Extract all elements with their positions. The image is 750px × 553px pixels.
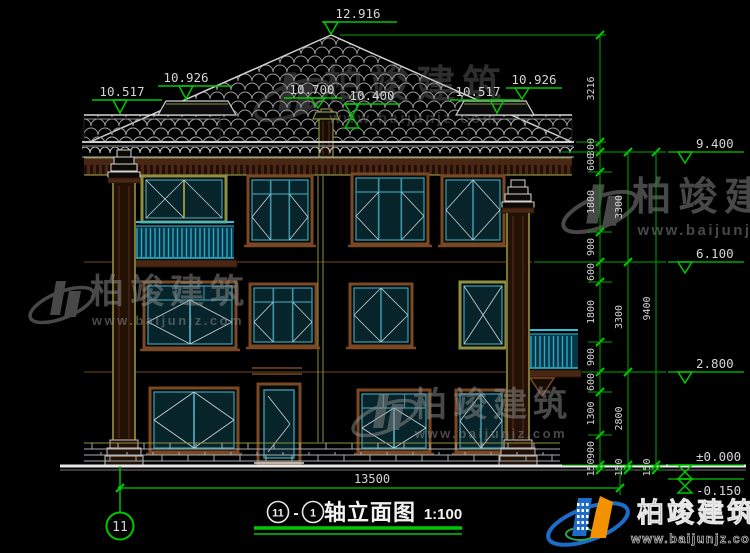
cad-viewport: 柏竣建筑www.baijunjz.com柏竣建筑www.baijunjz.com… [0, 0, 750, 553]
elevation-label: 10.517 [455, 84, 500, 99]
drawing-title: 轴立面图 [324, 500, 416, 525]
axis-bubble-label: 11 [112, 520, 128, 535]
elevation-label: 2.800 [696, 356, 734, 371]
elevation-marker: 9.400 [668, 136, 744, 163]
overall-dim-label: 13500 [354, 472, 390, 486]
elevation-label: ±0.000 [696, 449, 741, 464]
watermark-url: www.baijunjz.com [91, 313, 244, 328]
dim-label: 1800 [586, 300, 597, 324]
balcony-railing [525, 330, 581, 377]
elevation-drawing-svg: 柏竣建筑www.baijunjz.com柏竣建筑www.baijunjz.com… [0, 0, 750, 553]
elevation-marker: 2.800 [668, 356, 744, 383]
window [348, 174, 432, 246]
dim-label: 150 [586, 458, 597, 476]
brand-logo-url: www.baijunjz.com [630, 532, 750, 546]
dim-label: 3300 [614, 305, 625, 329]
elevation-label: 12.916 [335, 6, 380, 21]
elevation-label: 9.400 [696, 136, 734, 151]
dim-label: 900 [586, 348, 597, 366]
overall-dimension: 13500 [116, 468, 624, 495]
dimension-chain: 3216300600180090060018009006001300900150 [586, 31, 606, 477]
elevation-marker: -0.150 [668, 479, 744, 498]
elevation-label: 10.700 [289, 82, 334, 97]
dim-label: 600 [586, 153, 597, 171]
elevation-label: 10.400 [349, 88, 394, 103]
dim-label: 900 [586, 441, 597, 459]
brand-logo: 柏竣建筑www.baijunjz.com [543, 495, 750, 553]
window [246, 284, 320, 348]
watermark-brand: 柏竣建筑 [413, 385, 573, 424]
title-block: 11-1轴立面图1:100 [254, 500, 462, 534]
dim-label: 600 [586, 263, 597, 281]
watermark-brand: 柏竣建筑 [632, 176, 750, 219]
watermark-mid-left: 柏竣建筑www.baijunjz.com [26, 272, 250, 330]
elevation-label: 6.100 [696, 246, 734, 261]
dimension-chain: 330033002800150 [614, 148, 634, 477]
dim-label: 9400 [642, 296, 653, 320]
elevation-marker: 10.517 [92, 84, 162, 113]
left-parapet [84, 101, 236, 142]
dim-label: 2800 [614, 406, 625, 430]
elevation-label: 10.517 [99, 84, 144, 99]
title-dash: - [293, 505, 298, 522]
window [438, 176, 508, 246]
dim-label: 900 [586, 238, 597, 256]
axis-bubble: 11 [107, 466, 134, 540]
window [460, 282, 506, 348]
elevation-marker: 6.100 [668, 246, 744, 273]
window [146, 388, 242, 454]
dim-label: 1300 [586, 401, 597, 425]
elevation-marker: ±0.000 [668, 449, 744, 479]
elevation-label: -0.150 [696, 483, 741, 498]
elevation-label: 10.926 [511, 72, 556, 87]
dim-label: 3216 [586, 76, 597, 100]
elevation-marker: 12.916 [322, 6, 397, 34]
window [142, 176, 226, 222]
brand-logo-text: 柏竣建筑 [637, 497, 750, 528]
drawing-scale: 1:100 [424, 506, 462, 523]
title-axis-from: 11 [272, 508, 284, 520]
window [346, 284, 416, 348]
dim-label: 3300 [614, 195, 625, 219]
watermark-url: www.baijunjz.com [636, 222, 750, 239]
dim-label: 1800 [586, 190, 597, 214]
elevation-label: 10.926 [163, 70, 208, 85]
title-axis-to: 1 [310, 508, 316, 520]
dim-label: 600 [586, 373, 597, 391]
watermark-brand: 柏竣建筑 [90, 272, 250, 311]
window [244, 176, 316, 246]
elevation-marker: 10.926 [506, 72, 562, 99]
watermark-url: www.baijunjz.com [414, 426, 567, 441]
balcony-railing [131, 222, 237, 267]
dim-label: 150 [642, 458, 653, 476]
